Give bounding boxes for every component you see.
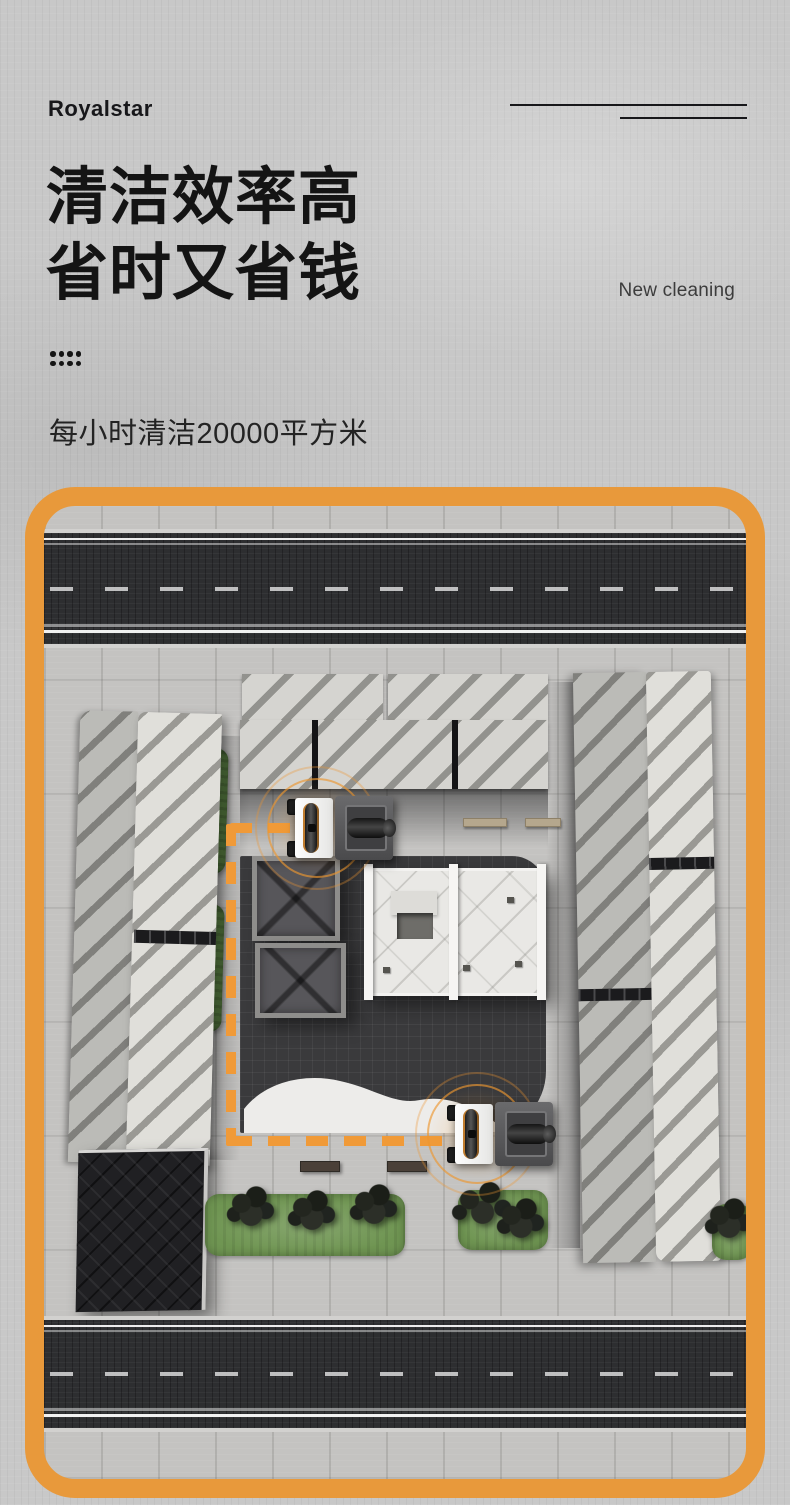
building-slot (134, 930, 216, 945)
building-top-back-row (242, 674, 548, 720)
pavilion-roof-block (391, 891, 437, 915)
tree (226, 1184, 278, 1230)
machine-front-body (455, 1104, 493, 1164)
page-title-line2: 省时又省钱 (46, 236, 361, 312)
plaza-dark-building-2 (255, 943, 346, 1018)
machine-front-body (295, 798, 333, 858)
pavilion-beam (537, 864, 546, 1000)
brand-logo: Royalstar (48, 96, 153, 122)
dot (50, 361, 56, 367)
bench (300, 1161, 340, 1172)
roof-stud (463, 965, 470, 971)
robot-path-vertical (226, 824, 236, 1146)
building-black (76, 1148, 209, 1312)
decor-dots-icon (50, 351, 81, 366)
building-left-tower (68, 710, 223, 1166)
cleaning-machine-1 (293, 796, 393, 860)
road-edge-line (44, 1325, 746, 1327)
roof-stud (383, 967, 390, 973)
dot (59, 351, 65, 357)
road-top (44, 533, 746, 644)
tagline-english: New cleaning (619, 280, 735, 302)
machine-rear-body (335, 796, 393, 860)
tree (496, 1196, 548, 1242)
aerial-plaza-scene (44, 506, 746, 1479)
building-right-tower (573, 671, 721, 1263)
dot (67, 351, 73, 357)
building-block (242, 674, 383, 720)
page-title: 清洁效率高 省时又省钱 (46, 160, 361, 312)
pavilion-beam (364, 864, 373, 1000)
dot (67, 361, 73, 367)
cleaning-rate-text: 每小时清洁20000平方米 (49, 410, 368, 452)
road-edge-line (44, 630, 746, 633)
road-edge-line (44, 1414, 746, 1417)
dot (76, 361, 82, 367)
tree (349, 1182, 401, 1228)
tree (704, 1196, 756, 1242)
dot (50, 351, 56, 357)
promo-page: Royalstar 清洁效率高 省时又省钱 New cleaning 每小时清洁… (0, 0, 790, 1505)
machine-cylinder-cap (543, 1125, 556, 1143)
page-title-line1: 清洁效率高 (46, 160, 361, 236)
roof-stud (515, 961, 522, 967)
machine-roller-brush (463, 1109, 479, 1159)
building-slab (646, 671, 721, 1262)
bench (525, 818, 561, 827)
header-rule-short (620, 117, 747, 119)
building-slot (578, 988, 651, 1001)
road-edge-line (44, 538, 746, 540)
cleaning-machine-2 (453, 1102, 553, 1166)
building-gap (452, 720, 458, 789)
pavilion-recess (397, 913, 433, 939)
dot (59, 361, 65, 367)
tree (287, 1188, 339, 1234)
road-bottom (44, 1320, 746, 1428)
bench (463, 818, 507, 827)
illustration-frame (25, 487, 765, 1498)
roof-stud (507, 897, 514, 903)
pavilion-beam (449, 864, 458, 1000)
building-block (388, 674, 548, 720)
dot (76, 351, 82, 357)
building-slot (649, 857, 714, 870)
header-rule-long (510, 104, 747, 106)
building-slab (573, 672, 656, 1263)
machine-roller-brush (303, 803, 319, 853)
machine-cylinder-cap (383, 819, 396, 837)
machine-rear-body (495, 1102, 553, 1166)
road-center-dashes (50, 1372, 740, 1376)
road-center-dashes (50, 587, 740, 591)
plaza-white-pavilion (364, 868, 546, 996)
